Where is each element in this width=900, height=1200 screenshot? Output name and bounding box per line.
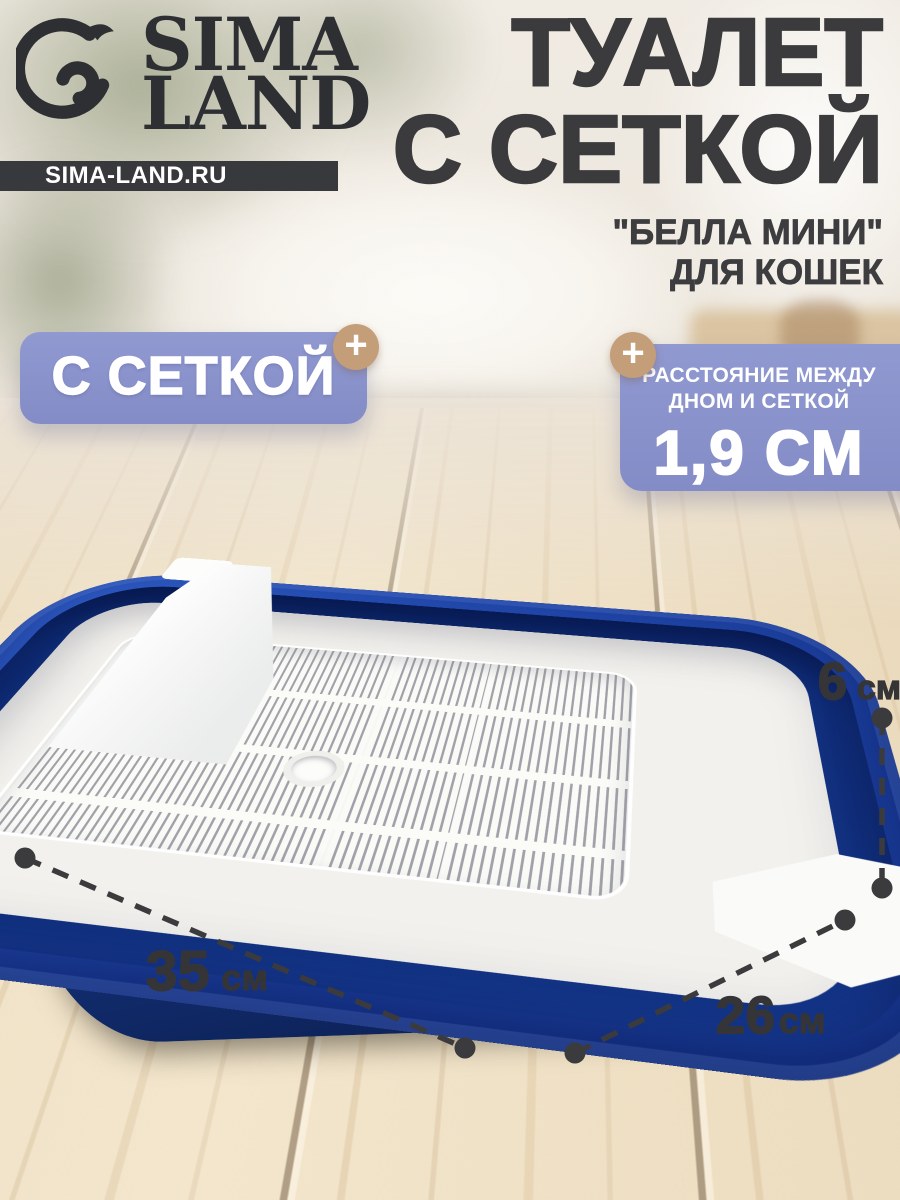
height-dimension-label: 6 см [818,652,900,712]
feature-badge-mesh: С СЕТКОЙ + [20,332,367,424]
spec-badge-value: 1,9 СМ [620,418,900,489]
spec-badge-line1: РАССТОЯНИЕ МЕЖДУ [620,363,900,389]
website-url: SIMA-LAND.RU [45,162,227,190]
spec-badge-line2: ДНОМ И СЕТКОЙ [620,389,900,415]
length-value: 35 [146,938,210,1003]
product-title: ТУАЛЕТ С СЕТКОЙ [393,4,883,198]
website-bar: SIMA-LAND.RU [0,161,338,191]
sima-land-logo-icon [16,16,118,138]
width-dimension-label: 26 см [716,986,826,1046]
length-dimension-label: 35 см [146,938,268,1003]
plus-icon: + [610,332,656,378]
brand-logo-line2: LAND [141,75,370,134]
brand-logo-text: SIMA LAND [141,16,370,134]
product-subtitle: "БЕЛЛА МИНИ" ДЛЯ КОШЕК [612,213,883,293]
plus-icon: + [333,324,379,370]
width-unit: см [779,1000,826,1042]
product-subtitle-line2: ДЛЯ КОШЕК [612,253,883,293]
width-value: 26 [716,986,776,1046]
height-unit: см [857,669,900,708]
product-subtitle-line1: "БЕЛЛА МИНИ" [612,213,883,253]
product-title-line1: ТУАЛЕТ [393,4,883,101]
feature-badge-label: С СЕТКОЙ [52,345,336,411]
height-value: 6 [818,652,848,712]
product-title-line2: С СЕТКОЙ [393,101,883,198]
product-card: 6 см 35 см 26 см SIMA LAND SIMA-LAND.RU … [0,0,900,1200]
length-unit: см [221,957,268,999]
spec-badge-gap: РАССТОЯНИЕ МЕЖДУ ДНОМ И СЕТКОЙ 1,9 СМ + [620,344,900,491]
